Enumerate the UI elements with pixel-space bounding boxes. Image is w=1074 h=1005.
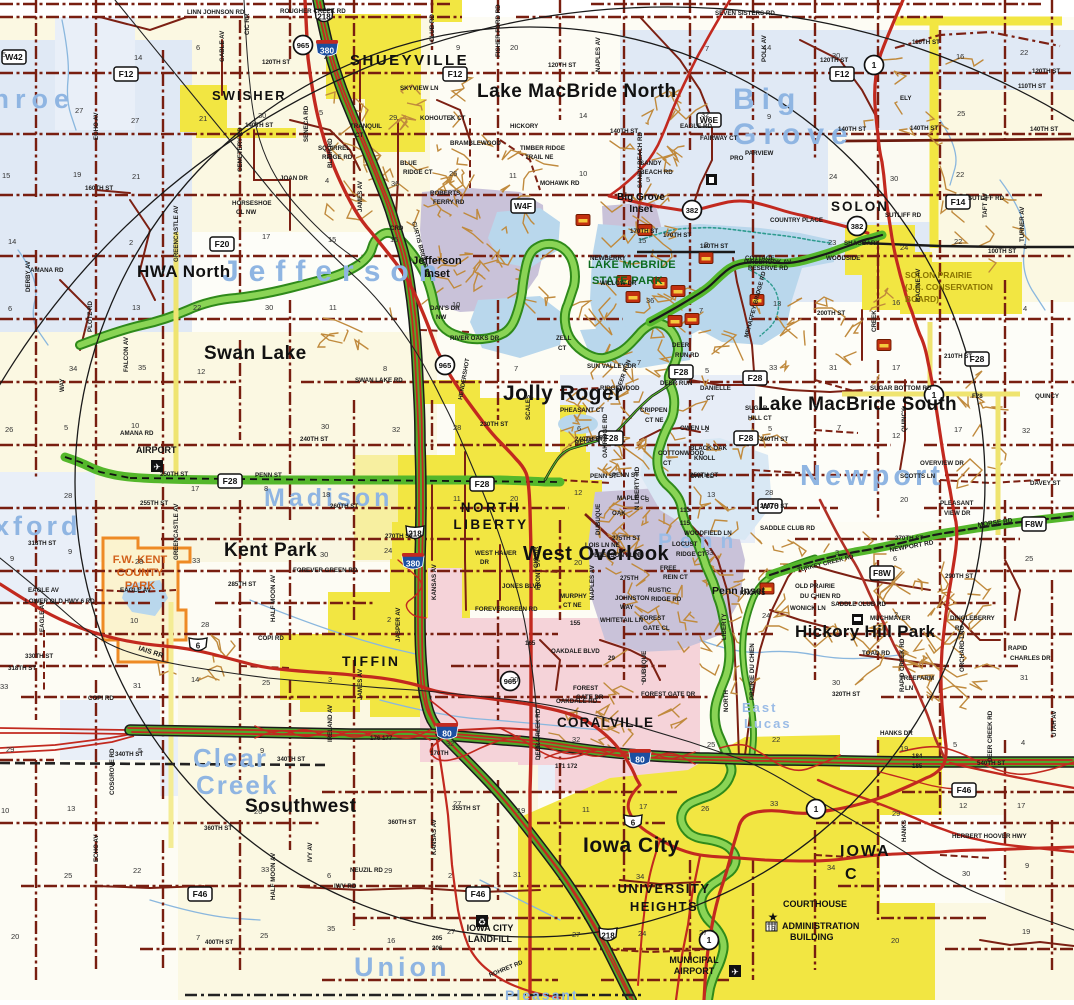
svg-text:FERRY RD: FERRY RD — [433, 199, 465, 206]
svg-text:COPI RD: COPI RD — [258, 635, 284, 642]
svg-text:9: 9 — [10, 554, 14, 563]
svg-text:HWA North: HWA North — [137, 262, 231, 281]
svg-text:BOARD): BOARD) — [905, 294, 939, 304]
svg-text:CHARLES DR: CHARLES DR — [1010, 655, 1051, 662]
svg-text:ELY: ELY — [900, 95, 912, 102]
svg-text:ROBERTS: ROBERTS — [430, 190, 460, 197]
svg-text:FOREST: FOREST — [573, 685, 598, 692]
svg-text:CEMETERY RD: CEMETERY RD — [237, 127, 244, 172]
svg-text:SENECA RD: SENECA RD — [303, 105, 310, 142]
svg-text:REIN CT: REIN CT — [663, 574, 688, 581]
svg-text:DEER: DEER — [672, 342, 690, 349]
svg-text:22: 22 — [954, 237, 962, 246]
svg-text:AMANA RD: AMANA RD — [30, 267, 64, 274]
svg-text:10: 10 — [452, 300, 460, 309]
svg-text:275TH ST: 275TH ST — [612, 535, 640, 542]
svg-text:OAKDALE BLVD: OAKDALE BLVD — [551, 648, 600, 655]
svg-text:HEIGHTS: HEIGHTS — [630, 899, 698, 914]
svg-text:FRONT ST: FRONT ST — [535, 559, 542, 590]
svg-text:155: 155 — [570, 620, 581, 627]
svg-text:36: 36 — [646, 296, 654, 305]
svg-text:205: 205 — [432, 935, 443, 942]
svg-text:4: 4 — [1023, 304, 1027, 313]
svg-text:400TH ST: 400TH ST — [205, 939, 233, 946]
svg-text:6: 6 — [637, 550, 641, 559]
svg-text:30: 30 — [962, 869, 970, 878]
svg-text:F46: F46 — [471, 889, 486, 899]
svg-text:20: 20 — [510, 675, 518, 684]
svg-text:HERBERT HOOVER HWY: HERBERT HOOVER HWY — [952, 833, 1027, 840]
svg-text:COURTHOUSE: COURTHOUSE — [783, 899, 847, 909]
svg-text:22: 22 — [193, 303, 201, 312]
svg-text:FALCON AV: FALCON AV — [123, 336, 130, 372]
svg-text:CT NE: CT NE — [563, 602, 582, 609]
svg-text:120TH ST: 120TH ST — [548, 62, 576, 69]
svg-text:5: 5 — [319, 108, 323, 117]
svg-text:GREENCASTLE AV: GREENCASTLE AV — [173, 503, 180, 560]
svg-text:21: 21 — [132, 172, 140, 181]
svg-text:NEWBERRY: NEWBERRY — [590, 255, 627, 262]
svg-text:FOREST: FOREST — [640, 615, 665, 622]
svg-text:RIDGE CT: RIDGE CT — [676, 551, 706, 558]
svg-text:DEER CREEK RD: DEER CREEK RD — [535, 708, 542, 760]
svg-text:9: 9 — [1025, 861, 1029, 870]
svg-text:F14: F14 — [951, 197, 966, 207]
svg-text:RESERVE RD: RESERVE RD — [748, 265, 789, 272]
svg-text:HANKS: HANKS — [901, 820, 908, 842]
svg-text:16: 16 — [892, 298, 900, 307]
svg-text:3: 3 — [835, 548, 839, 557]
svg-text:F8W: F8W — [873, 568, 892, 578]
svg-text:HANKS DR: HANKS DR — [880, 730, 913, 737]
svg-text:110TH ST: 110TH ST — [912, 39, 940, 46]
svg-text:160TH ST: 160TH ST — [85, 185, 113, 192]
svg-text:27: 27 — [572, 930, 580, 939]
svg-text:18: 18 — [322, 490, 330, 499]
svg-text:6: 6 — [8, 304, 12, 313]
svg-text:PRO: PRO — [730, 155, 744, 162]
svg-text:184: 184 — [912, 753, 923, 760]
svg-text:31: 31 — [513, 870, 521, 879]
svg-text:29: 29 — [608, 655, 615, 662]
svg-text:13: 13 — [773, 299, 781, 308]
svg-text:Swan Lake: Swan Lake — [204, 343, 307, 364]
svg-text:29: 29 — [384, 866, 392, 875]
svg-text:255TH ST: 255TH ST — [140, 500, 168, 507]
svg-text:ECHO AV: ECHO AV — [93, 834, 100, 862]
svg-text:12: 12 — [892, 431, 900, 440]
svg-text:25: 25 — [1025, 554, 1033, 563]
svg-text:PLEASANT: PLEASANT — [940, 500, 974, 507]
svg-text:34: 34 — [69, 364, 77, 373]
svg-text:Pleasant: Pleasant — [505, 987, 579, 1000]
svg-text:5: 5 — [705, 366, 709, 375]
svg-text:ADMINISTRATION: ADMINISTRATION — [782, 921, 859, 931]
svg-text:1: 1 — [1023, 242, 1027, 251]
svg-text:15: 15 — [638, 236, 646, 245]
svg-text:AIRPORT: AIRPORT — [136, 445, 177, 455]
svg-text:WOODSIDE: WOODSIDE — [826, 255, 860, 262]
svg-text:20: 20 — [891, 936, 899, 945]
svg-text:FAIRWAY CT: FAIRWAY CT — [700, 135, 738, 142]
svg-text:SKYVIEW LN: SKYVIEW LN — [400, 85, 439, 92]
svg-text:218: 218 — [601, 932, 615, 941]
svg-text:12: 12 — [574, 488, 582, 497]
svg-text:6: 6 — [577, 424, 581, 433]
svg-text:COUNTY: COUNTY — [117, 567, 164, 579]
svg-text:CRD: CRD — [390, 225, 404, 232]
svg-text:20: 20 — [510, 43, 518, 52]
svg-text:2: 2 — [705, 425, 709, 434]
svg-text:11: 11 — [509, 171, 517, 180]
svg-text:24: 24 — [900, 243, 908, 252]
svg-text:LOIS LN NE: LOIS LN NE — [585, 542, 620, 549]
svg-text:240TH ST: 240TH ST — [300, 436, 328, 443]
svg-text:2: 2 — [448, 871, 452, 880]
svg-text:9: 9 — [260, 746, 264, 755]
svg-text:7: 7 — [837, 423, 841, 432]
svg-text:CIC RR: CIC RR — [244, 13, 251, 35]
svg-text:CT: CT — [706, 395, 714, 402]
svg-text:16: 16 — [956, 52, 964, 61]
svg-text:30: 30 — [258, 111, 266, 120]
svg-text:MUCHMAYER: MUCHMAYER — [870, 615, 911, 622]
svg-text:EAGLE AV: EAGLE AV — [28, 587, 60, 594]
svg-text:SANDY BEACH RD: SANDY BEACH RD — [637, 132, 644, 188]
svg-text:KANSAS AV: KANSAS AV — [431, 818, 438, 855]
svg-text:19: 19 — [517, 806, 525, 815]
svg-text:GATE CL: GATE CL — [643, 625, 670, 632]
svg-text:240TH ST: 240TH ST — [760, 436, 788, 443]
svg-text:330TH ST: 330TH ST — [25, 653, 53, 660]
svg-text:BUILDING: BUILDING — [790, 932, 834, 942]
svg-text:SCALES: SCALES — [525, 395, 532, 420]
svg-text:25: 25 — [262, 678, 270, 687]
svg-text:7: 7 — [699, 306, 703, 315]
svg-text:DEER CREEK RD: DEER CREEK RD — [987, 710, 994, 762]
svg-text:4: 4 — [1021, 738, 1025, 747]
svg-text:230TH ST: 230TH ST — [480, 421, 508, 428]
svg-text:Lake MacBride South: Lake MacBride South — [758, 394, 957, 415]
svg-text:12: 12 — [197, 367, 205, 376]
svg-text:WONICK LN: WONICK LN — [790, 605, 826, 612]
svg-text:965: 965 — [297, 41, 310, 50]
svg-text:Grove: Grove — [733, 118, 855, 151]
svg-text:25: 25 — [957, 109, 965, 118]
svg-text:OLD PRAIRIE: OLD PRAIRIE — [795, 583, 835, 590]
svg-text:250TH ST: 250TH ST — [160, 471, 188, 478]
svg-text:26: 26 — [701, 804, 709, 813]
svg-text:RIDGE RD: RIDGE RD — [651, 596, 682, 603]
svg-text:F28: F28 — [475, 479, 490, 489]
svg-text:CLUB RD: CLUB RD — [429, 14, 436, 42]
svg-text:170TH ST: 170TH ST — [630, 228, 658, 235]
svg-text:120TH ST: 120TH ST — [262, 59, 290, 66]
svg-text:14: 14 — [579, 111, 587, 120]
svg-text:170TH ST: 170TH ST — [663, 232, 691, 239]
svg-text:DEER RUN: DEER RUN — [660, 380, 693, 387]
svg-text:LOCUST: LOCUST — [672, 541, 698, 548]
svg-text:RACINE AV: RACINE AV — [915, 268, 922, 302]
svg-text:6: 6 — [893, 554, 897, 563]
svg-text:BLUE: BLUE — [400, 160, 417, 167]
svg-text:4: 4 — [324, 53, 328, 62]
svg-text:6: 6 — [196, 642, 201, 651]
svg-text:318TH ST: 318TH ST — [8, 665, 36, 672]
svg-text:22: 22 — [133, 866, 141, 875]
svg-text:FOREST GATE DR: FOREST GATE DR — [641, 691, 696, 698]
svg-text:31: 31 — [829, 363, 837, 372]
svg-text:33: 33 — [769, 363, 777, 372]
svg-text:11: 11 — [453, 494, 461, 503]
svg-text:QUINCY: QUINCY — [1035, 393, 1060, 400]
svg-text:MUNICIPAL: MUNICIPAL — [669, 955, 719, 965]
svg-text:140TH ST: 140TH ST — [1030, 126, 1058, 133]
svg-text:210TH ST: 210TH ST — [944, 353, 972, 360]
svg-text:CORALVILLE: CORALVILLE — [557, 715, 654, 730]
svg-text:JAMES AV: JAMES AV — [357, 668, 364, 700]
svg-text:PENN ST: PENN ST — [255, 472, 282, 479]
svg-text:14: 14 — [8, 237, 16, 246]
svg-text:CRIPPEN: CRIPPEN — [640, 407, 668, 414]
svg-text:xford: xford — [0, 511, 82, 541]
svg-text:140TH ST: 140TH ST — [910, 125, 938, 132]
svg-text:5: 5 — [953, 740, 957, 749]
svg-text:5: 5 — [768, 424, 772, 433]
svg-text:35: 35 — [138, 363, 146, 372]
svg-text:NAPLES AV: NAPLES AV — [589, 564, 596, 600]
svg-text:120TH ST: 120TH ST — [1032, 68, 1060, 75]
svg-text:33: 33 — [0, 682, 8, 691]
svg-text:TOAD RD: TOAD RD — [862, 650, 891, 657]
svg-text:7: 7 — [514, 364, 518, 373]
svg-text:SADDLE CLUB RD: SADDLE CLUB RD — [831, 601, 887, 608]
svg-text:COUNTRY PLACE: COUNTRY PLACE — [770, 217, 823, 224]
svg-text:FREE: FREE — [660, 565, 677, 572]
svg-text:35: 35 — [327, 924, 335, 933]
svg-text:17: 17 — [1017, 801, 1025, 810]
svg-text:31: 31 — [1020, 673, 1028, 682]
svg-text:27: 27 — [699, 928, 707, 937]
svg-text:KANSAS AV: KANSAS AV — [431, 563, 438, 600]
svg-text:22: 22 — [1020, 48, 1028, 57]
svg-text:Inset: Inset — [629, 204, 653, 215]
svg-text:2: 2 — [704, 240, 708, 249]
svg-text:W42: W42 — [5, 52, 23, 62]
svg-text:14: 14 — [191, 675, 199, 684]
svg-text:FISHER FORD RD: FISHER FORD RD — [495, 4, 502, 57]
svg-text:OVERVIEW DR: OVERVIEW DR — [920, 460, 964, 467]
svg-text:✈: ✈ — [731, 967, 739, 977]
svg-text:5: 5 — [646, 175, 650, 184]
svg-text:113: 113 — [680, 507, 691, 514]
svg-text:VIEW DR: VIEW DR — [944, 510, 971, 517]
svg-text:30: 30 — [832, 678, 840, 687]
svg-text:EAGLE AV: EAGLE AV — [39, 600, 46, 632]
svg-text:2: 2 — [387, 615, 391, 624]
svg-text:TURNER AV: TURNER AV — [1019, 206, 1026, 242]
svg-text:NAPLES AV: NAPLES AV — [595, 36, 602, 72]
svg-text:JOHNSTON: JOHNSTON — [615, 595, 650, 602]
svg-text:F28: F28 — [748, 373, 763, 383]
svg-text:PLOTZ RD: PLOTZ RD — [87, 301, 94, 332]
svg-text:380: 380 — [406, 559, 420, 569]
svg-text:10: 10 — [130, 616, 138, 625]
svg-text:25: 25 — [707, 740, 715, 749]
svg-text:DANIELLE: DANIELLE — [700, 385, 731, 392]
svg-text:30: 30 — [321, 422, 329, 431]
svg-text:SEVEN SISTERS RD: SEVEN SISTERS RD — [715, 10, 775, 17]
svg-text:GABLE AV: GABLE AV — [219, 30, 226, 62]
svg-text:F46: F46 — [957, 785, 972, 795]
svg-text:170TH: 170TH — [430, 750, 449, 757]
svg-text:KOHOUTEK CT: KOHOUTEK CT — [420, 115, 466, 122]
svg-text:2: 2 — [449, 113, 453, 122]
svg-text:LIBERTY: LIBERTY — [721, 613, 728, 640]
svg-text:NORTH: NORTH — [723, 689, 730, 712]
svg-text:7: 7 — [196, 933, 200, 942]
svg-text:29: 29 — [892, 809, 900, 818]
svg-text:25: 25 — [260, 931, 268, 940]
svg-text:EAGLE RD: EAGLE RD — [680, 123, 713, 130]
svg-text:MOHAWK RD: MOHAWK RD — [540, 180, 580, 187]
svg-text:WILLOW DR: WILLOW DR — [600, 280, 637, 287]
svg-text:5: 5 — [138, 746, 142, 755]
svg-text:10: 10 — [1, 806, 9, 815]
svg-text:F12: F12 — [835, 69, 850, 79]
svg-text:NW: NW — [436, 314, 446, 321]
svg-text:26: 26 — [5, 425, 13, 434]
svg-text:LANDFILL: LANDFILL — [468, 934, 512, 944]
svg-text:1: 1 — [707, 935, 712, 945]
svg-text:LIBERTY: LIBERTY — [453, 517, 528, 532]
svg-text:COTTONWOOD: COTTONWOOD — [658, 450, 704, 457]
svg-text:CREEK: CREEK — [871, 310, 878, 332]
svg-text:JAMES AV: JAMES AV — [357, 180, 364, 212]
svg-text:DU CHIEN RD: DU CHIEN RD — [800, 593, 841, 600]
svg-text:Big Grove: Big Grove — [617, 192, 665, 203]
svg-text:320TH ST: 320TH ST — [832, 691, 860, 698]
svg-text:CT NE: CT NE — [645, 417, 664, 424]
svg-text:7: 7 — [641, 678, 645, 687]
svg-text:F46: F46 — [193, 889, 208, 899]
svg-text:EAGLE AV: EAGLE AV — [120, 587, 152, 594]
svg-text:ROUGHER CREEK RD: ROUGHER CREEK RD — [280, 8, 346, 15]
svg-text:HORSESHOE: HORSESHOE — [232, 200, 272, 207]
svg-text:HALF MOON AV: HALF MOON AV — [270, 852, 277, 900]
svg-text:30: 30 — [320, 550, 328, 559]
svg-text:Lake MacBride North: Lake MacBride North — [477, 81, 677, 102]
svg-text:318TH ST: 318TH ST — [28, 540, 56, 547]
svg-text:22: 22 — [772, 735, 780, 744]
svg-text:17: 17 — [954, 425, 962, 434]
svg-text:NEUZIL RD: NEUZIL RD — [350, 867, 383, 874]
svg-text:171 172: 171 172 — [555, 763, 578, 770]
svg-text:JOAN DR: JOAN DR — [280, 175, 308, 182]
svg-text:DUBUQUE: DUBUQUE — [595, 504, 602, 535]
svg-text:BRAMBLEWOOD: BRAMBLEWOOD — [450, 140, 501, 147]
svg-text:DR: DR — [480, 559, 489, 566]
svg-text:10: 10 — [131, 421, 139, 430]
svg-text:WOODFIELD LN: WOODFIELD LN — [684, 530, 732, 537]
svg-text:32: 32 — [446, 739, 454, 748]
svg-text:F20: F20 — [215, 239, 230, 249]
svg-text:275TH: 275TH — [620, 575, 639, 582]
svg-text:31: 31 — [133, 681, 141, 690]
svg-text:6: 6 — [631, 819, 636, 828]
svg-text:19: 19 — [767, 924, 775, 933]
svg-text:200TH ST: 200TH ST — [817, 310, 845, 317]
svg-text:26: 26 — [254, 807, 262, 816]
svg-text:ORCHARD LN: ORCHARD LN — [959, 630, 966, 672]
svg-text:F8W: F8W — [1025, 519, 1044, 529]
svg-text:F12: F12 — [448, 69, 463, 79]
svg-text:Hickory Hill Park: Hickory Hill Park — [795, 622, 935, 641]
svg-text:F28: F28 — [739, 433, 754, 443]
svg-text:W4F: W4F — [514, 201, 532, 211]
svg-text:23: 23 — [828, 238, 836, 247]
svg-text:27: 27 — [453, 799, 461, 808]
svg-text:KNOTTS: KNOTTS — [740, 590, 765, 597]
svg-text:24: 24 — [384, 546, 392, 555]
svg-text:COPI RD: COPI RD — [88, 695, 114, 702]
svg-text:15: 15 — [2, 171, 10, 180]
svg-text:SWAN LAKE RD: SWAN LAKE RD — [355, 377, 403, 384]
svg-text:176 177: 176 177 — [370, 735, 393, 742]
svg-text:5: 5 — [2, 50, 6, 59]
svg-text:N LIBERTY RD: N LIBERTY RD — [634, 466, 641, 510]
svg-text:AMANA RD: AMANA RD — [120, 430, 154, 437]
svg-text:3: 3 — [645, 495, 649, 504]
svg-text:22: 22 — [956, 170, 964, 179]
svg-text:HICKORY: HICKORY — [510, 123, 539, 130]
svg-text:COTTAGE: COTTAGE — [745, 255, 775, 262]
svg-text:140TH ST: 140TH ST — [245, 122, 273, 129]
svg-text:RIDGE CT: RIDGE CT — [403, 169, 433, 176]
svg-text:2: 2 — [129, 238, 133, 247]
svg-text:27: 27 — [447, 927, 455, 936]
svg-text:32: 32 — [1022, 426, 1030, 435]
svg-text:20: 20 — [900, 495, 908, 504]
svg-text:SUTLIFF RD: SUTLIFF RD — [885, 212, 922, 219]
svg-text:RAPID: RAPID — [1008, 645, 1028, 652]
svg-text:25: 25 — [64, 871, 72, 880]
svg-text:SHAGBARK: SHAGBARK — [844, 240, 880, 247]
svg-text:ZELL: ZELL — [556, 335, 572, 342]
svg-text:F28: F28 — [674, 367, 689, 377]
svg-text:4: 4 — [325, 176, 329, 185]
svg-text:29: 29 — [6, 745, 14, 754]
svg-text:115: 115 — [680, 520, 691, 527]
svg-text:17: 17 — [639, 802, 647, 811]
svg-text:RAPID CREEK RD: RAPID CREEK RD — [899, 638, 906, 692]
svg-text:7: 7 — [705, 44, 709, 53]
svg-text:OAK: OAK — [612, 510, 626, 517]
svg-text:CL NW: CL NW — [236, 209, 256, 216]
svg-text:East: East — [742, 700, 777, 715]
svg-text:17: 17 — [262, 232, 270, 241]
svg-text:TRANQUIL: TRANQUIL — [350, 123, 382, 130]
svg-text:HILL CT: HILL CT — [748, 415, 772, 422]
svg-text:RUSTIC: RUSTIC — [648, 587, 672, 594]
svg-text:3: 3 — [328, 675, 332, 684]
svg-text:GREENCASTLE AV: GREENCASTLE AV — [173, 205, 180, 262]
svg-text:TIMBER RIDGE: TIMBER RIDGE — [520, 145, 565, 152]
svg-text:100TH ST: 100TH ST — [988, 248, 1016, 255]
svg-text:HALF MOON AV: HALF MOON AV — [270, 574, 277, 622]
svg-text:10: 10 — [579, 169, 587, 178]
svg-text:360TH ST: 360TH ST — [204, 825, 232, 832]
